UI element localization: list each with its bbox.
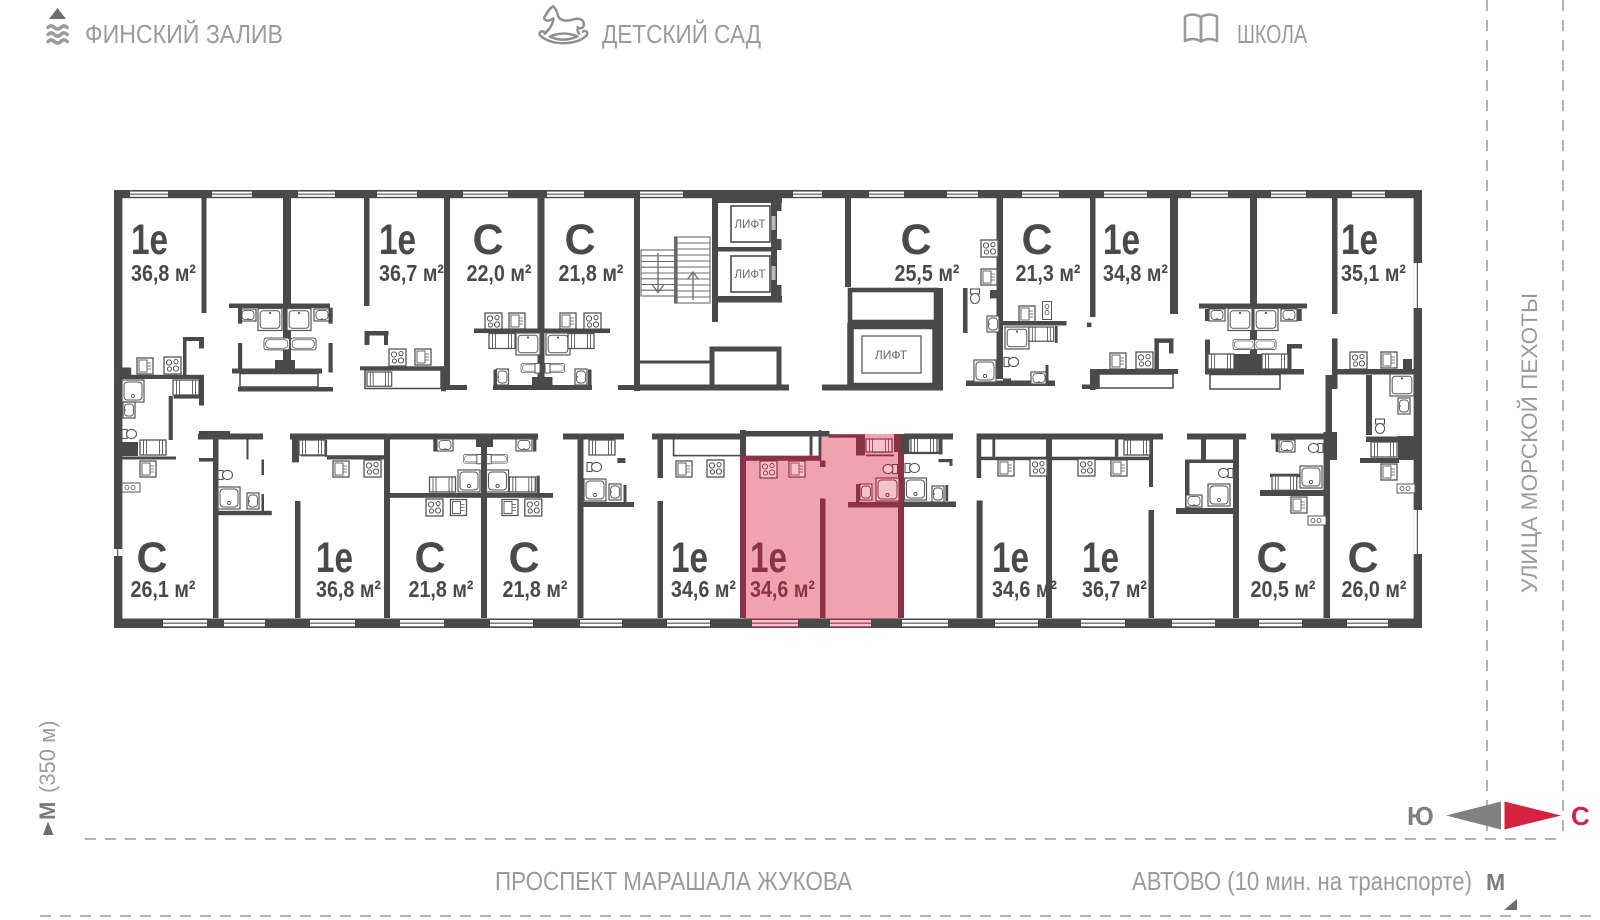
svg-text:34,6 м²: 34,6 м² xyxy=(671,576,736,602)
svg-text:1е: 1е xyxy=(750,535,787,582)
svg-text:22,0 м²: 22,0 м² xyxy=(467,260,532,286)
svg-text:С: С xyxy=(900,216,931,264)
svg-text:УЛИЦА МОРСКОЙ ПЕХОТЫ: УЛИЦА МОРСКОЙ ПЕХОТЫ xyxy=(1517,293,1542,593)
svg-text:21,8 м²: 21,8 м² xyxy=(409,576,474,602)
svg-text:ПРОСПЕКТ МАРАШАЛА ЖУКОВА: ПРОСПЕКТ МАРАШАЛА ЖУКОВА xyxy=(495,866,853,896)
svg-text:М: М xyxy=(35,802,60,820)
svg-text:1е: 1е xyxy=(992,535,1029,582)
svg-text:35,1 м²: 35,1 м² xyxy=(1341,260,1406,286)
svg-text:(350 м): (350 м) xyxy=(35,720,60,793)
svg-text:ДЕТСКИЙ САД: ДЕТСКИЙ САД xyxy=(602,19,761,49)
svg-text:36,8 м²: 36,8 м² xyxy=(131,260,196,286)
svg-text:1е: 1е xyxy=(316,535,353,582)
svg-text:ЛИФТ: ЛИФТ xyxy=(875,348,908,362)
svg-text:36,7 м²: 36,7 м² xyxy=(379,260,444,286)
svg-text:21,8 м²: 21,8 м² xyxy=(559,260,624,286)
svg-text:Ю: Ю xyxy=(1407,801,1434,831)
svg-text:34,6 м²: 34,6 м² xyxy=(992,576,1057,602)
svg-text:34,8 м²: 34,8 м² xyxy=(1103,260,1168,286)
svg-text:С: С xyxy=(508,534,539,582)
svg-text:АВТОВО (10 мин. на транспорте): АВТОВО (10 мин. на транспорте) xyxy=(1132,866,1472,896)
svg-text:21,3 м²: 21,3 м² xyxy=(1016,260,1081,286)
svg-text:1е: 1е xyxy=(1082,535,1119,582)
svg-text:1е: 1е xyxy=(1103,217,1140,264)
svg-text:С: С xyxy=(1021,216,1052,264)
svg-text:С: С xyxy=(1347,534,1378,582)
svg-text:С: С xyxy=(472,216,503,264)
svg-text:1е: 1е xyxy=(1341,217,1378,264)
svg-text:21,8 м²: 21,8 м² xyxy=(503,576,568,602)
svg-text:ШКОЛА: ШКОЛА xyxy=(1237,19,1307,49)
svg-text:1е: 1е xyxy=(671,535,708,582)
svg-text:С: С xyxy=(414,534,445,582)
svg-text:1е: 1е xyxy=(131,217,168,264)
svg-text:С: С xyxy=(1256,534,1287,582)
svg-text:20,5 м²: 20,5 м² xyxy=(1251,576,1316,602)
svg-text:1е: 1е xyxy=(379,217,416,264)
svg-text:С: С xyxy=(1571,801,1590,831)
svg-text:ЛИФТ: ЛИФТ xyxy=(735,219,766,231)
svg-text:36,7 м²: 36,7 м² xyxy=(1082,576,1147,602)
svg-text:26,0 м²: 26,0 м² xyxy=(1342,576,1407,602)
svg-text:С: С xyxy=(136,534,167,582)
svg-text:М: М xyxy=(1486,869,1505,895)
svg-text:25,5 м²: 25,5 м² xyxy=(895,260,960,286)
svg-text:34,6 м²: 34,6 м² xyxy=(750,576,815,602)
svg-text:26,1 м²: 26,1 м² xyxy=(131,576,196,602)
svg-text:36,8 м²: 36,8 м² xyxy=(316,576,381,602)
svg-text:С: С xyxy=(564,216,595,264)
svg-text:ЛИФТ: ЛИФТ xyxy=(735,269,766,281)
svg-text:ФИНСКИЙ ЗАЛИВ: ФИНСКИЙ ЗАЛИВ xyxy=(85,19,283,49)
